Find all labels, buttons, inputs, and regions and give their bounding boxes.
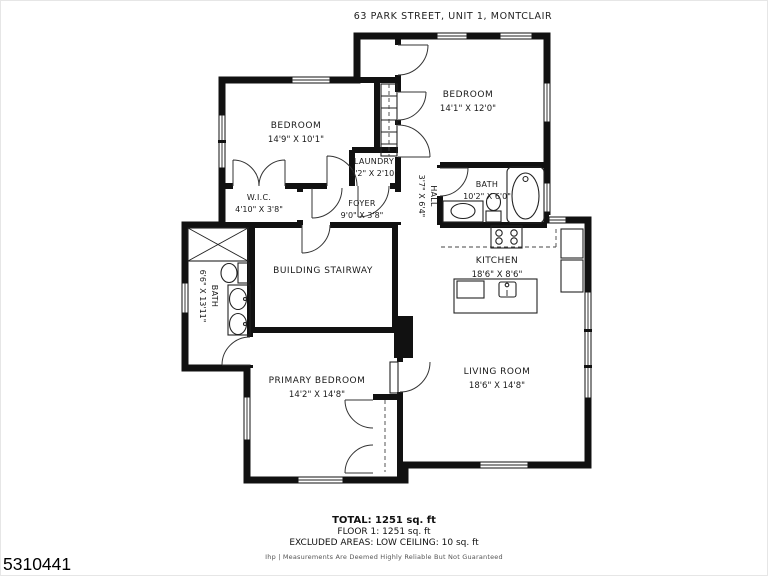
- floorplan-svg: BEDROOM 14'9" X 10'1" BEDROOM 14'1" X 12…: [0, 0, 768, 576]
- room-label-hall: HALL 3'7" X 6'4": [417, 175, 438, 218]
- double-sink-icon: [228, 285, 250, 335]
- room-label-bedroom-1: BEDROOM: [271, 121, 321, 131]
- room-label-bath-upper: BATH: [476, 180, 498, 189]
- bathtub-icon: [507, 167, 544, 223]
- room-label-wic: W.I.C.: [247, 193, 271, 202]
- room-label-kitchen: KITCHEN: [476, 256, 519, 266]
- stove-icon: [491, 226, 522, 248]
- window: [500, 31, 532, 41]
- door-arc: [302, 225, 330, 253]
- excluded-area: EXCLUDED AREAS: LOW CEILING: 10 sq. ft: [0, 538, 768, 549]
- window: [480, 460, 528, 470]
- room-dims-bath-upper: 10'2" X 6'0": [463, 192, 511, 201]
- svg-text:6'6" X 13'11": 6'6" X 13'11": [198, 270, 207, 323]
- total-area: TOTAL: 1251 sq. ft: [0, 515, 768, 527]
- door-arc: [398, 125, 430, 157]
- svg-text:BATH: BATH: [210, 285, 219, 307]
- room-label-foyer: FOYER: [348, 199, 376, 208]
- room-label-laundry: LAUNDRY: [354, 157, 394, 166]
- door-arc: [345, 400, 373, 428]
- area-summary: TOTAL: 1251 sq. ft FLOOR 1: 1251 sq. ft …: [0, 515, 768, 561]
- chimney-block: [394, 316, 413, 358]
- floorplan-page: 63 PARK STREET, UNIT 1, MONTCLAIR: [0, 0, 768, 576]
- kitchen-island: [454, 279, 537, 313]
- door-arc: [312, 188, 342, 218]
- room-dims-kitchen: 18'6" X 8'6": [472, 270, 523, 280]
- door-arc: [398, 92, 426, 120]
- room-label-primary-bedroom: PRIMARY BEDROOM: [269, 376, 366, 386]
- svg-text:HALL: HALL: [429, 185, 438, 207]
- listing-number: 5310441: [3, 554, 71, 575]
- sink-icon: [443, 201, 483, 222]
- svg-text:3'7" X 6'4": 3'7" X 6'4": [417, 175, 426, 218]
- window: [242, 397, 252, 440]
- window: [180, 283, 190, 313]
- room-dims-bedroom-1: 14'9" X 10'1": [268, 135, 324, 145]
- room-dims-foyer: 9'0" X 3'8": [341, 211, 384, 220]
- window: [542, 83, 552, 122]
- room-dims-primary-bedroom: 14'2" X 14'8": [289, 390, 345, 400]
- door-arc: [398, 45, 428, 75]
- doors: [222, 45, 468, 473]
- stairs-closet: [381, 84, 397, 156]
- disclaimer-text: Ihp | Measurements Are Deemed Highly Rel…: [0, 553, 768, 561]
- room-dims-wic: 4'10" X 3'8": [235, 205, 283, 214]
- shower-icon: [188, 228, 248, 261]
- window: [583, 292, 593, 398]
- window: [292, 75, 330, 85]
- door-arc: [345, 445, 373, 473]
- door-arc: [233, 160, 259, 186]
- room-dims-laundry: 3'2" X 2'10": [350, 169, 398, 178]
- room-label-living-room: LIVING ROOM: [464, 367, 531, 377]
- window: [549, 215, 566, 225]
- room-label-bath-left: BATH 6'6" X 13'11": [198, 270, 219, 323]
- window: [298, 475, 343, 485]
- door-arc: [259, 160, 285, 186]
- room-dims-bedroom-2: 14'1" X 12'0": [440, 104, 496, 114]
- room-dims-living-room: 18'6" X 14'8": [469, 381, 525, 391]
- door-arc: [222, 337, 250, 365]
- toilet-icon: [221, 263, 249, 283]
- room-label-building-stairway: BUILDING STAIRWAY: [273, 266, 373, 276]
- room-label-bedroom-2: BEDROOM: [443, 90, 493, 100]
- window: [437, 31, 467, 41]
- floor-area: FLOOR 1: 1251 sq. ft: [0, 527, 768, 538]
- window: [217, 115, 227, 168]
- door-arc: [390, 362, 430, 393]
